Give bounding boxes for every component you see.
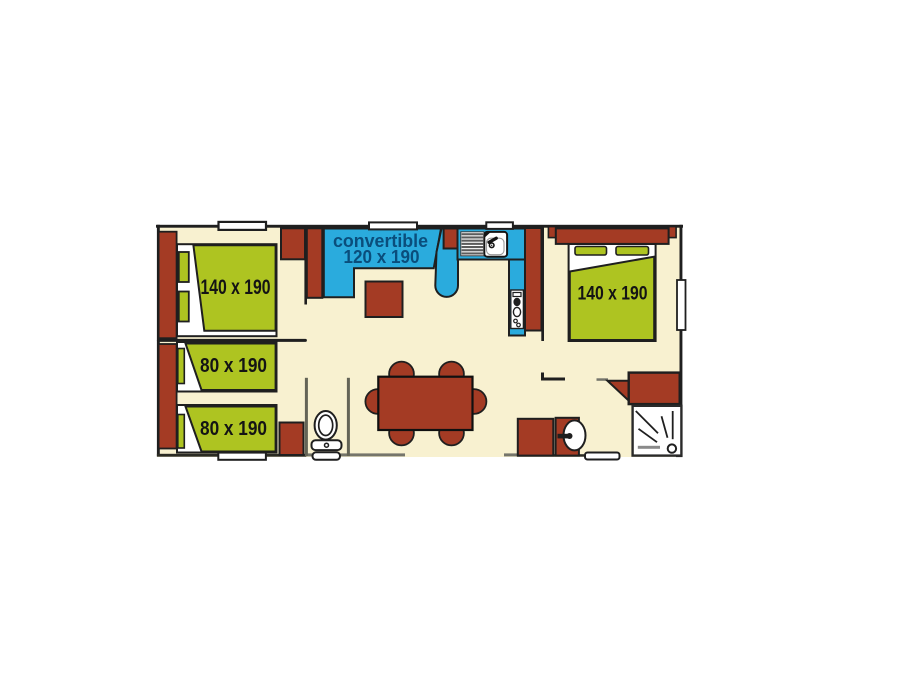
svg-text:80 x 190: 80 x 190 — [200, 354, 267, 377]
svg-text:120 x 190: 120 x 190 — [344, 247, 420, 267]
svg-text:80 x 190: 80 x 190 — [200, 417, 267, 440]
svg-text:140 x 190: 140 x 190 — [578, 284, 648, 305]
svg-text:140 x 190: 140 x 190 — [201, 275, 271, 299]
